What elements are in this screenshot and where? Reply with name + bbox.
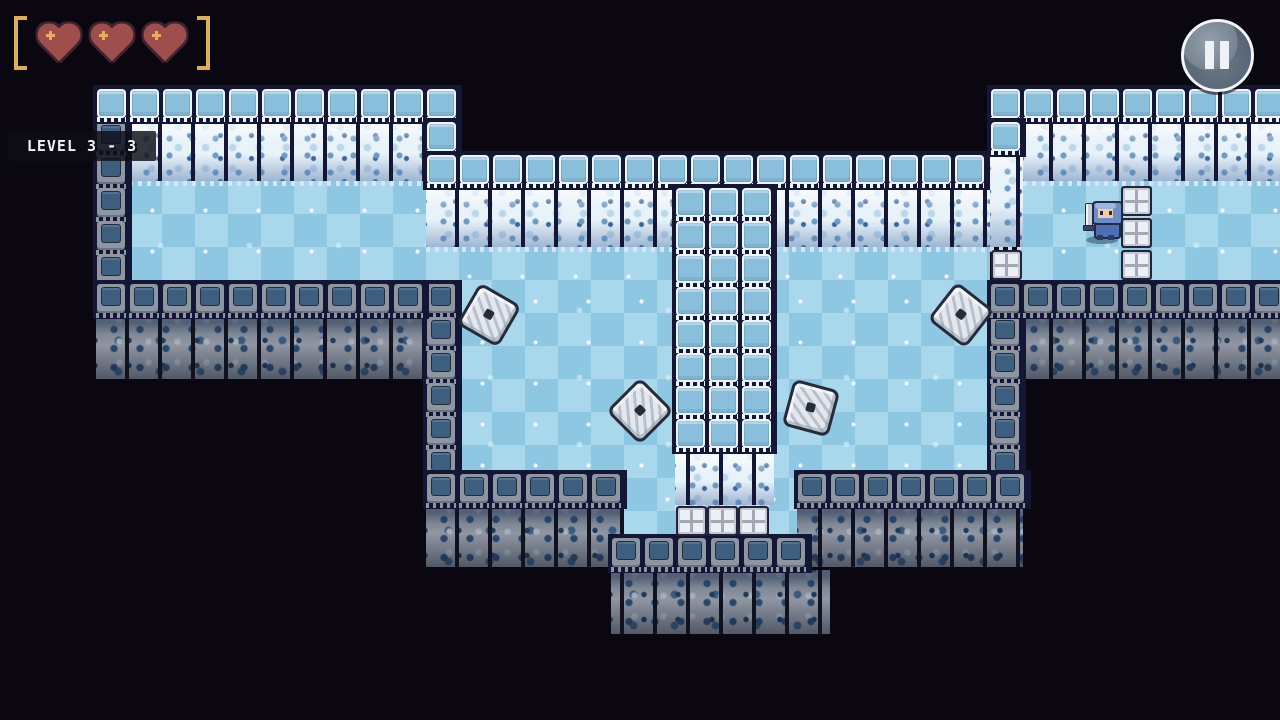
game-viewport: LEVEL 3 - 3 — [0, 0, 1280, 720]
health-heart-icon — [36, 22, 82, 64]
metal-crate-block — [1121, 218, 1152, 248]
ice-wall-tile — [625, 155, 654, 184]
stone-wall-tile — [777, 538, 805, 567]
stone-wall-tile — [711, 538, 739, 567]
ice-wall-tile — [394, 89, 423, 118]
stone-wall-tile — [897, 474, 925, 503]
stone-wall-tile — [559, 474, 587, 503]
health-bar — [14, 16, 210, 70]
ice-wall-tile — [709, 419, 738, 448]
ice-wall-tile — [823, 155, 852, 184]
stone-wall-tile — [1222, 284, 1250, 313]
ice-wall-tile — [1024, 89, 1053, 118]
stone-wall-tile — [262, 284, 290, 313]
ice-wall-tile — [229, 89, 258, 118]
ice-wall-tile — [559, 155, 588, 184]
ice-wall-tile — [676, 386, 705, 415]
stone-wall-tile — [1057, 284, 1085, 313]
ice-wall-tile — [676, 320, 705, 349]
ice-wall-tile — [709, 221, 738, 250]
pause-icon — [1220, 41, 1229, 69]
player-character — [1085, 201, 1119, 243]
ice-wall-tile — [1255, 89, 1280, 118]
ice-wall-tile — [1123, 89, 1152, 118]
stone-wall-tile — [427, 416, 455, 445]
stone-wall-tile — [1090, 284, 1118, 313]
stone-wall-tile — [678, 538, 706, 567]
level-tilemap — [0, 0, 1280, 720]
stone-wall-tile — [930, 474, 958, 503]
stone-wall-texture — [990, 316, 1280, 379]
health-frame-bracket-right — [197, 16, 210, 70]
stone-wall-tile — [831, 474, 859, 503]
ice-wall-tile — [742, 419, 771, 448]
ice-wall-tile — [676, 188, 705, 217]
stone-wall-tile — [427, 350, 455, 379]
heart-sparkle-icon — [99, 31, 108, 40]
stone-wall-texture — [797, 506, 1023, 567]
pause-icon — [1205, 41, 1214, 69]
stone-wall-tile — [427, 383, 455, 412]
ice-wall-tile — [742, 254, 771, 283]
ice-wall-tile — [328, 89, 357, 118]
ice-wall-tile — [1156, 89, 1185, 118]
ice-wall-tile — [130, 89, 159, 118]
stone-wall-tile — [1156, 284, 1184, 313]
stone-wall-tile — [394, 284, 422, 313]
metal-crate-block — [738, 506, 769, 536]
stone-wall-tile — [1255, 284, 1280, 313]
ice-wall-tile — [658, 155, 687, 184]
ice-wall-tile — [922, 155, 951, 184]
pause-button[interactable] — [1181, 19, 1254, 92]
ice-wall-tile — [955, 155, 984, 184]
stone-wall-tile — [864, 474, 892, 503]
heart-sparkle-icon — [152, 31, 161, 40]
metal-crate-block — [991, 250, 1022, 280]
metal-crate-block — [1121, 250, 1152, 280]
stone-wall-tile — [328, 284, 356, 313]
ice-wall-tile — [856, 155, 885, 184]
ice-wall-tile — [991, 122, 1020, 151]
ice-wall-tile — [1189, 89, 1218, 118]
ice-wall-texture — [426, 187, 675, 247]
ice-wall-tile — [676, 419, 705, 448]
ice-wall-tile — [724, 155, 753, 184]
ice-wall-tile — [493, 155, 522, 184]
health-heart-icon — [142, 22, 188, 64]
ice-wall-texture — [129, 121, 426, 181]
ice-wall-tile — [757, 155, 786, 184]
ice-wall-tile — [709, 254, 738, 283]
stone-wall-tile — [229, 284, 257, 313]
ice-wall-tile — [1222, 89, 1251, 118]
ice-wall-tile — [709, 188, 738, 217]
stone-wall-texture — [96, 316, 426, 379]
ice-wall-tile — [295, 89, 324, 118]
stone-wall-tile — [996, 474, 1024, 503]
player-leg — [1108, 235, 1114, 240]
health-frame-bracket-left — [14, 16, 27, 70]
heart-sparkle-icon — [46, 31, 55, 40]
ice-wall-tile — [742, 221, 771, 250]
ice-wall-texture — [1023, 121, 1280, 181]
stone-wall-tile — [97, 221, 125, 250]
ice-wall-tile — [742, 287, 771, 316]
health-heart-icon — [89, 22, 135, 64]
stone-wall-tile — [97, 254, 125, 283]
ice-wall-tile — [1090, 89, 1119, 118]
stone-wall-tile — [361, 284, 389, 313]
ice-wall-tile — [709, 287, 738, 316]
stone-wall-tile — [163, 284, 191, 313]
stone-wall-tile — [493, 474, 521, 503]
ice-wall-texture — [990, 154, 1023, 247]
ice-wall-tile — [676, 353, 705, 382]
stone-wall-tile — [963, 474, 991, 503]
player-eye — [1109, 211, 1112, 215]
ice-wall-tile — [991, 89, 1020, 118]
level-indicator: LEVEL 3 - 3 — [8, 131, 156, 161]
ice-wall-tile — [709, 353, 738, 382]
ice-wall-tile — [742, 188, 771, 217]
ice-wall-tile — [691, 155, 720, 184]
ice-wall-tile — [742, 320, 771, 349]
ice-floor-region — [129, 181, 426, 283]
stone-wall-tile — [97, 284, 125, 313]
stone-wall-tile — [991, 383, 1019, 412]
ice-wall-tile — [709, 386, 738, 415]
stone-wall-tile — [427, 474, 455, 503]
ice-wall-texture — [675, 451, 774, 505]
stone-wall-tile — [1123, 284, 1151, 313]
stone-wall-tile — [1189, 284, 1217, 313]
ice-wall-tile — [427, 89, 456, 118]
ice-wall-tile — [742, 386, 771, 415]
level-indicator-label: LEVEL 3 - 3 — [27, 137, 137, 155]
stone-wall-tile — [645, 538, 673, 567]
stone-wall-tile — [295, 284, 323, 313]
ice-wall-texture — [774, 187, 990, 247]
ice-wall-tile — [196, 89, 225, 118]
stone-wall-tile — [991, 416, 1019, 445]
hearts-row — [36, 22, 188, 64]
stone-wall-tile — [612, 538, 640, 567]
ice-wall-tile — [526, 155, 555, 184]
stone-wall-texture — [426, 506, 624, 567]
stone-wall-tile — [1024, 284, 1052, 313]
stone-wall-tile — [97, 188, 125, 217]
ice-wall-tile — [676, 287, 705, 316]
metal-crate-block — [707, 506, 738, 536]
ice-wall-tile — [427, 155, 456, 184]
ice-wall-tile — [676, 254, 705, 283]
stone-wall-texture — [611, 570, 830, 634]
ice-wall-tile — [676, 221, 705, 250]
stone-wall-tile — [798, 474, 826, 503]
stone-wall-tile — [991, 284, 1019, 313]
stone-wall-tile — [991, 350, 1019, 379]
ice-wall-tile — [592, 155, 621, 184]
player-leg — [1097, 235, 1103, 240]
stone-wall-tile — [526, 474, 554, 503]
stone-wall-tile — [592, 474, 620, 503]
metal-crate-block — [676, 506, 707, 536]
stone-wall-tile — [460, 474, 488, 503]
ice-wall-tile — [790, 155, 819, 184]
stone-wall-tile — [427, 284, 455, 313]
ice-wall-tile — [709, 320, 738, 349]
ice-wall-tile — [361, 89, 390, 118]
ice-wall-tile — [427, 122, 456, 151]
stone-wall-tile — [991, 317, 1019, 346]
ice-wall-tile — [1057, 89, 1086, 118]
ice-wall-tile — [97, 89, 126, 118]
ice-wall-tile — [262, 89, 291, 118]
metal-crate-block — [1121, 186, 1152, 216]
ice-wall-tile — [889, 155, 918, 184]
stone-wall-tile — [196, 284, 224, 313]
ice-wall-tile — [460, 155, 489, 184]
stone-wall-tile — [744, 538, 772, 567]
stone-wall-tile — [130, 284, 158, 313]
ice-wall-tile — [742, 353, 771, 382]
stone-wall-tile — [427, 317, 455, 346]
ice-wall-tile — [163, 89, 192, 118]
player-eye — [1100, 211, 1103, 215]
